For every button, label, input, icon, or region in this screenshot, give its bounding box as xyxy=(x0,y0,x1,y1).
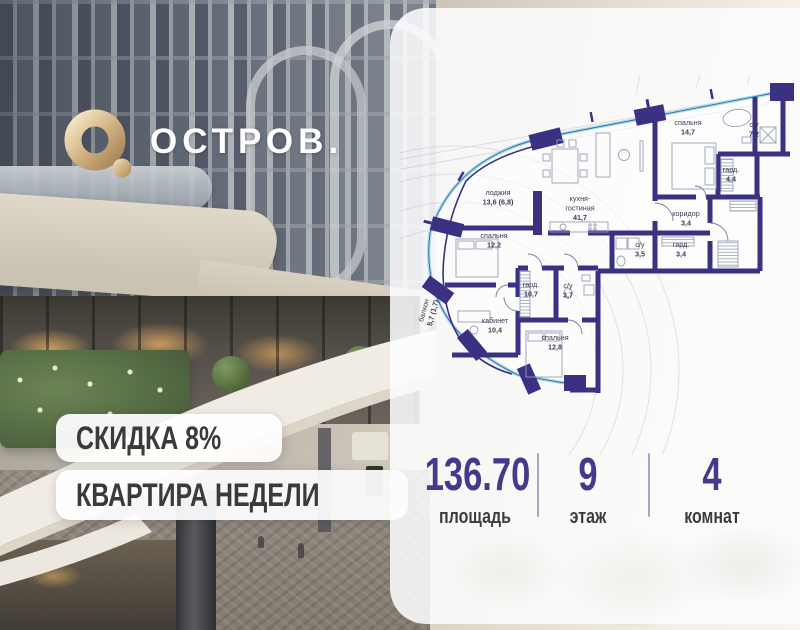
pedestrian xyxy=(258,536,264,548)
svg-text:кабинет: кабинет xyxy=(482,316,509,325)
discount-badge-label: СКИДКА 8% xyxy=(76,420,221,457)
floor-label: этаж xyxy=(551,506,625,529)
svg-text:7,2: 7,2 xyxy=(749,130,759,139)
svg-text:3,5: 3,5 xyxy=(635,250,645,259)
stat-area: 136.70 площадь xyxy=(408,451,542,529)
svg-text:гард.: гард. xyxy=(523,280,539,289)
stat-floor: 9 этаж xyxy=(542,451,634,529)
room-label-bath-3: с/у3,7 xyxy=(563,281,573,300)
area-label: площадь xyxy=(421,506,528,529)
svg-text:10,4: 10,4 xyxy=(488,326,502,335)
floor-plan: спальня14,7с/у7,2гард.4,4коридор3,4с/у3,… xyxy=(400,75,800,455)
area-value: 136.70 xyxy=(425,451,526,497)
svg-text:10,7: 10,7 xyxy=(524,290,538,299)
pedestrian xyxy=(298,543,304,558)
svg-text:спальня: спальня xyxy=(480,231,507,240)
svg-text:41,7: 41,7 xyxy=(573,213,587,222)
room-label-loggia: лоджия13,6 (6,8) xyxy=(483,188,514,207)
room-label-wardrobe-3: гард.10,7 xyxy=(523,280,539,299)
rooms-label: комнат xyxy=(666,506,759,529)
kiosk xyxy=(352,432,388,460)
svg-text:коридор: коридор xyxy=(672,209,699,218)
stats-divider xyxy=(537,453,539,517)
svg-text:кухня-: кухня- xyxy=(570,194,591,203)
svg-text:13,6 (6,8): 13,6 (6,8) xyxy=(483,198,514,207)
room-label-bath-1: с/у7,2 xyxy=(749,120,759,139)
info-panel: спальня14,7с/у7,2гард.4,4коридор3,4с/у3,… xyxy=(390,8,800,624)
room-label-bath-2: с/у3,5 xyxy=(635,240,645,259)
svg-text:лоджия: лоджия xyxy=(485,188,510,197)
svg-text:спальня: спальня xyxy=(674,118,701,127)
brand-logo: ОСТРОВ. xyxy=(58,104,378,184)
svg-text:с/у: с/у xyxy=(635,240,645,249)
svg-text:4,4: 4,4 xyxy=(726,175,736,184)
svg-text:спальня: спальня xyxy=(541,333,568,342)
svg-text:14,7: 14,7 xyxy=(681,128,695,137)
svg-text:12,2: 12,2 xyxy=(487,241,501,250)
apartment-of-week-badge: КВАРТИРА НЕДЕЛИ xyxy=(56,470,408,520)
room-label-balcony: балкон5,7 (1,7) xyxy=(416,296,441,327)
svg-text:гард.: гард. xyxy=(673,240,689,249)
floor-value: 9 xyxy=(554,451,623,497)
stat-rooms: 4 комнат xyxy=(654,451,770,529)
ad-creative: ОСТРОВ. СКИДКА 8% КВАРТИРА НЕДЕЛИ xyxy=(0,0,800,630)
svg-text:3,7: 3,7 xyxy=(563,291,573,300)
curved-walkway xyxy=(0,0,436,630)
svg-text:3,4: 3,4 xyxy=(681,219,691,228)
svg-text:12,8: 12,8 xyxy=(548,343,562,352)
brand-ring-icon xyxy=(58,104,148,188)
apartment-stats: 136.70 площадь 9 этаж 4 комнат xyxy=(390,445,800,545)
rooms-value: 4 xyxy=(669,451,756,497)
discount-badge: СКИДКА 8% xyxy=(56,414,282,462)
svg-text:с/у: с/у xyxy=(563,281,573,290)
svg-text:гостиная: гостиная xyxy=(565,204,594,213)
svg-text:3,4: 3,4 xyxy=(676,250,686,259)
svg-text:с/у: с/у xyxy=(749,120,759,129)
apartment-of-week-label: КВАРТИРА НЕДЕЛИ xyxy=(76,477,320,514)
stats-divider xyxy=(648,453,650,517)
svg-text:гард.: гард. xyxy=(723,165,739,174)
brand-name: ОСТРОВ. xyxy=(150,122,343,162)
